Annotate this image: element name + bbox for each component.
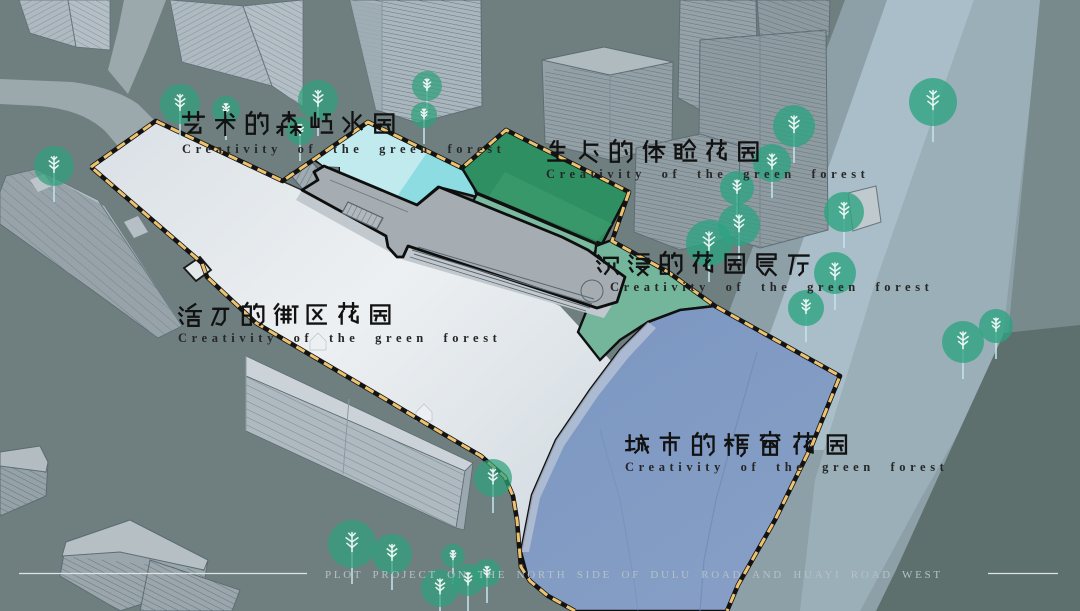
svg-text:Creativity of the green forest: Creativity of the green forest: [182, 142, 505, 156]
svg-text:Creativity of the green forest: Creativity of the green forest: [625, 460, 948, 474]
svg-text:Creativity of the green forest: Creativity of the green forest: [610, 280, 933, 294]
svg-text:PLOT PROJECT ON THE NORTH SIDE: PLOT PROJECT ON THE NORTH SIDE OF DULU R…: [325, 569, 943, 581]
svg-text:Creativity of the green forest: Creativity of the green forest: [546, 167, 869, 181]
svg-text:Creativity of the green forest: Creativity of the green forest: [178, 331, 501, 345]
